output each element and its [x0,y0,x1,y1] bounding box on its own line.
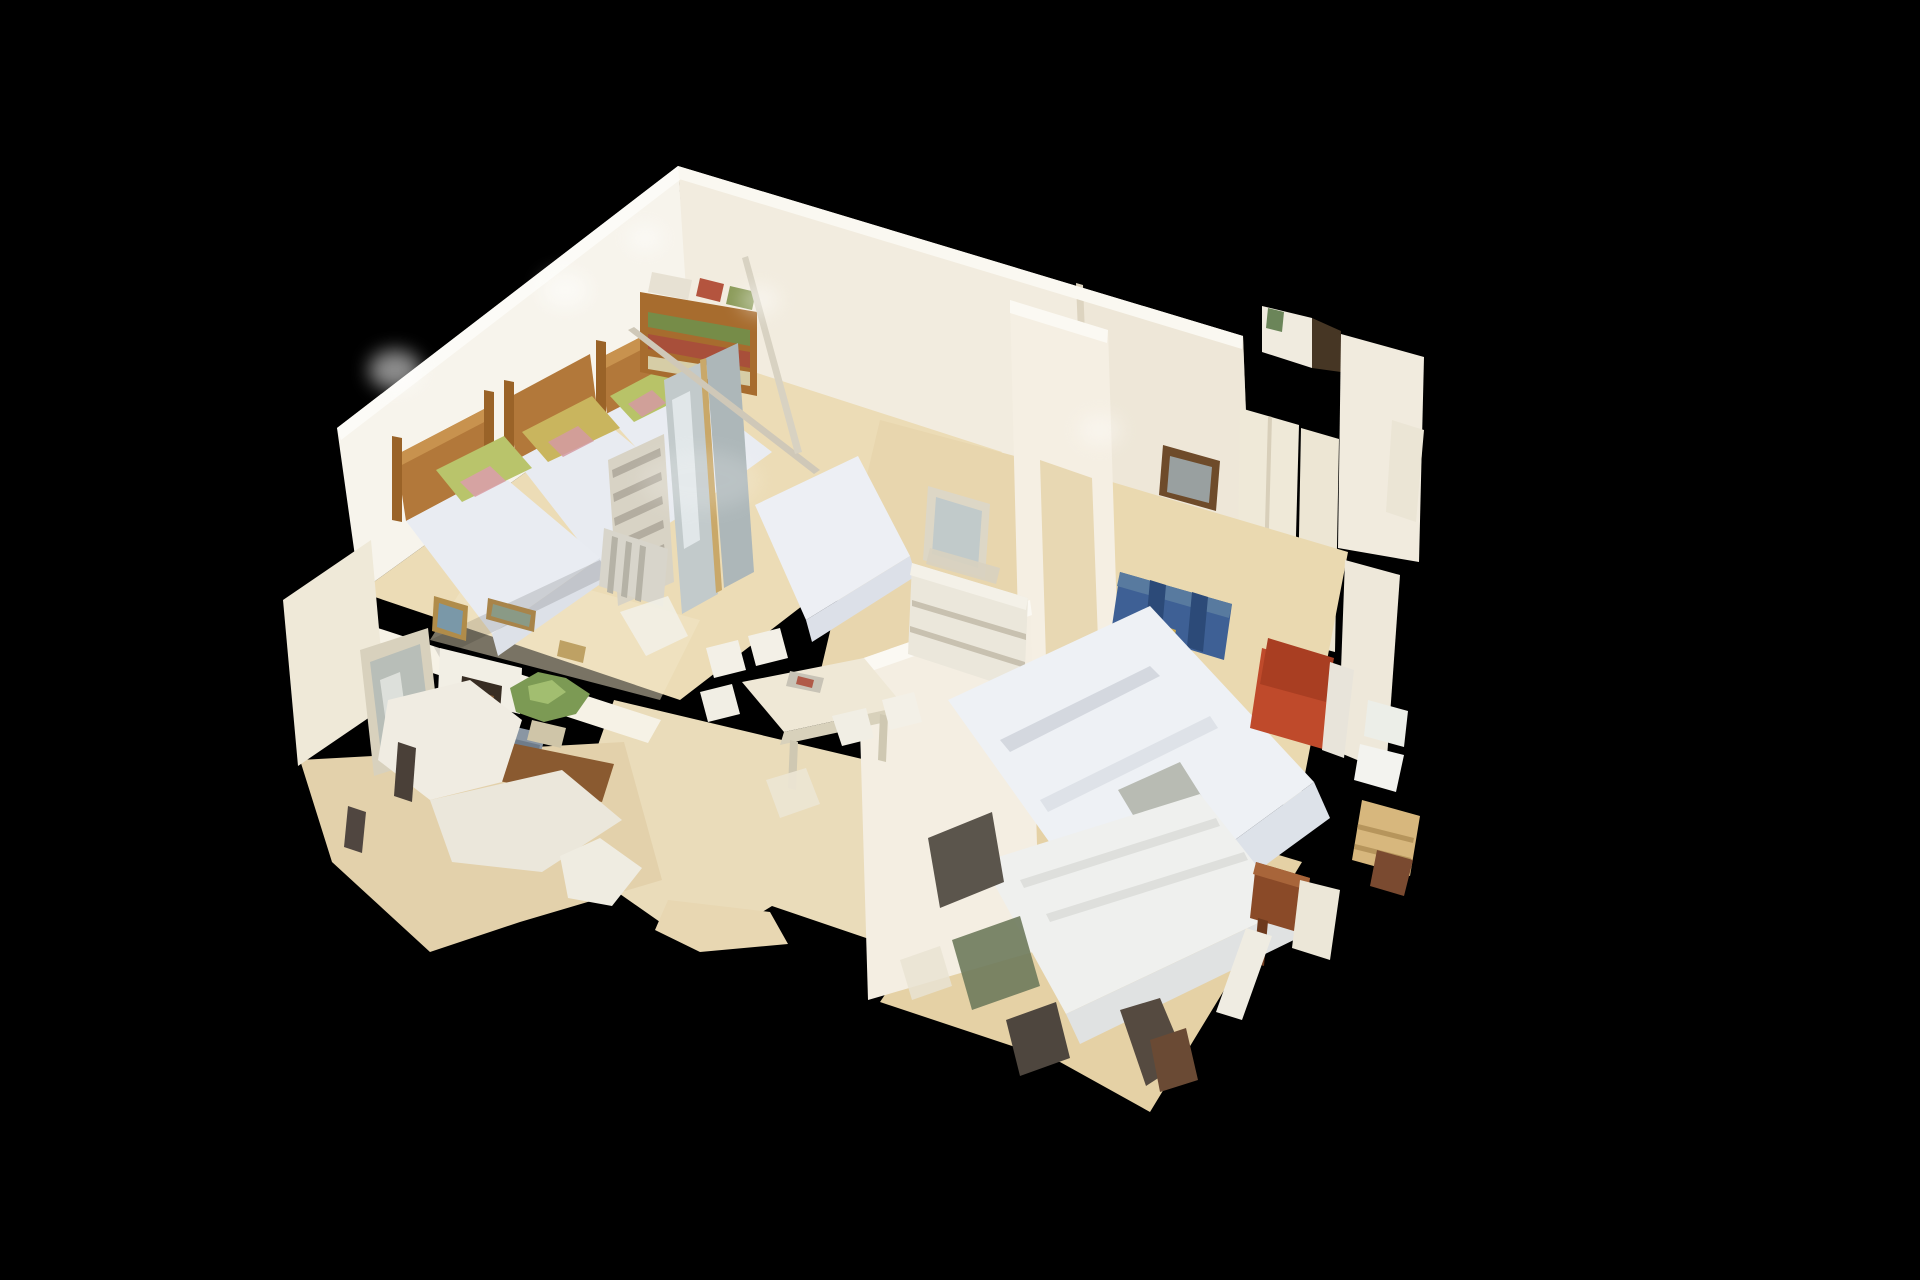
wall-light-glow4 [740,285,780,315]
chimney-green-sliver [1266,308,1284,332]
ceiling-light-glow3 [627,224,663,252]
wall-light-glow5 [1078,414,1122,446]
divider-doorway [1040,460,1098,660]
dollhouse-3d-viewport[interactable] [0,0,1920,1280]
floor-light-pool [640,450,760,510]
dollhouse-shape-layer [0,0,1920,1280]
ceiling-light-glow1 [369,350,421,390]
bed1-post [392,436,402,522]
dollhouse-3d-view[interactable] [0,0,1920,1280]
ceiling-light-glow2 [541,272,589,308]
